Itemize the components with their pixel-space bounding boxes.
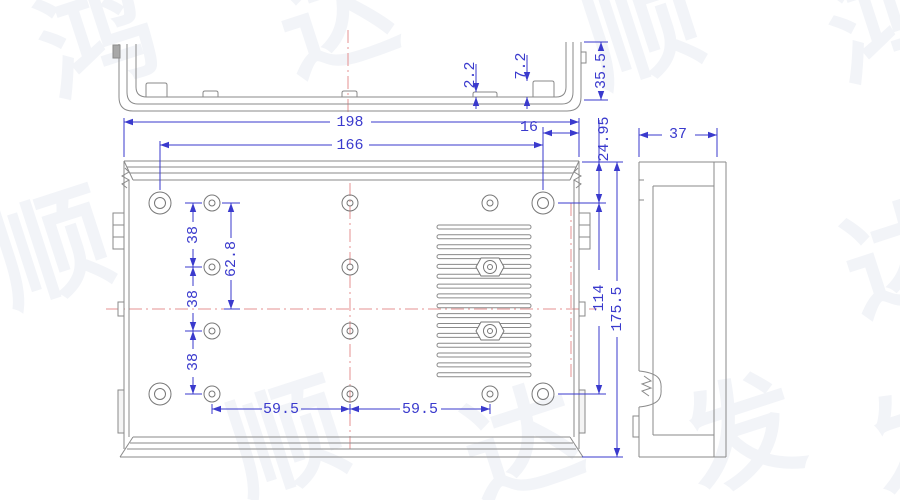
watermark-char: 达 (449, 370, 600, 500)
dim-label-59-5-right: 59.5 (402, 401, 438, 418)
front-bottom-flare-left (120, 437, 133, 457)
grille-slot (437, 245, 531, 249)
watermark-layer: 鸿 达 顺 鸿 顺 达 顺 达 发 发 (0, 0, 900, 500)
grille-slot (437, 304, 531, 308)
dim-label-wall-height: 35.5 (593, 53, 610, 89)
grille-boss-hole-ring (484, 261, 497, 274)
small-screw-hole-inner (209, 328, 215, 334)
front-top-chamfer-right (570, 161, 579, 180)
watermark-char: 发 (854, 364, 900, 500)
watermark-char: 达 (264, 0, 415, 108)
small-screw-hole (204, 386, 220, 402)
left-edge-bottom-mark (118, 390, 124, 433)
dim-label-62-8: 62.8 (223, 241, 240, 277)
small-screw-hole-inner (209, 200, 215, 206)
dim-label-overall-height: 175.5 (609, 286, 626, 331)
grille-slot (437, 373, 531, 377)
grille-slot (437, 363, 531, 367)
small-screw-hole (482, 195, 498, 211)
watermark-char: 发 (669, 359, 820, 500)
grille-slot (437, 353, 531, 357)
left-edge-bump (118, 302, 124, 316)
drawing-canvas: 鸿 达 顺 鸿 顺 达 顺 达 发 发 (0, 0, 900, 500)
grille-slot (437, 314, 531, 318)
tab-4-low (473, 92, 497, 97)
dim-label-38-bottom: 38 (185, 353, 202, 371)
dim-label-tab-large: 7.2 (513, 52, 530, 79)
large-screw-hole (532, 192, 554, 214)
watermark-char: 鸿 (814, 0, 900, 113)
grille-slots (437, 225, 531, 377)
grille-slot (437, 284, 531, 288)
dim-label-top-offset: 24.95 (596, 116, 613, 161)
side-bottom-left-tab (633, 416, 639, 437)
large-screw-hole-inner (538, 198, 549, 209)
small-screw-hole (204, 323, 220, 339)
grille-slot (437, 343, 531, 347)
small-screw-hole-inner (487, 200, 493, 206)
left-edge-tab-block (113, 213, 124, 249)
left-edge-break-mark (122, 168, 129, 188)
grille-slot (437, 294, 531, 298)
right-edge-bump (579, 302, 585, 316)
grille-slot (437, 225, 531, 229)
small-screw-hole-inner (209, 264, 215, 270)
grille-slot (437, 235, 531, 239)
dim-label-hole-span-height: 114 (591, 284, 608, 311)
large-screw-hole (149, 383, 171, 405)
small-screw-hole (204, 195, 220, 211)
large-screw-hole-inner (155, 198, 166, 209)
right-edge-break-mark (574, 168, 581, 188)
tab-2 (203, 91, 218, 97)
watermark-char: 达 (829, 185, 900, 348)
watermark-char: 顺 (215, 368, 365, 500)
dim-label-tab-small: 2.2 (462, 61, 479, 88)
front-top-chamfer-left (124, 161, 133, 180)
left-wall-cap (113, 45, 120, 58)
small-screw-hole (204, 259, 220, 275)
dim-label-38-mid: 38 (185, 290, 202, 308)
dim-label-59-5-left: 59.5 (263, 401, 299, 418)
large-screw-hole (149, 192, 171, 214)
right-wall-notch (581, 52, 586, 63)
right-edge-bottom-mark (579, 390, 585, 433)
dim-label-right-offset: 16 (520, 119, 538, 136)
watermark-char: 顺 (0, 178, 130, 338)
cable-grommet-teeth (642, 376, 651, 396)
dim-label-depth: 37 (669, 126, 687, 143)
dim-label-38-top: 38 (185, 226, 202, 244)
watermark-char: 鸿 (24, 0, 175, 128)
small-screw-hole-inner (209, 391, 215, 397)
cable-grommet-notch (639, 371, 661, 407)
technical-drawing: 鸿 达 顺 鸿 顺 达 顺 达 发 发 (0, 0, 900, 500)
grille-boss-hole-ring (484, 325, 497, 338)
dim-label-overall-width: 198 (336, 114, 363, 131)
right-edge-tab-block (579, 213, 590, 249)
tab-5-tall (533, 81, 554, 97)
dim-label-hole-span-width: 166 (336, 137, 363, 154)
large-screw-hole-inner (155, 389, 166, 400)
